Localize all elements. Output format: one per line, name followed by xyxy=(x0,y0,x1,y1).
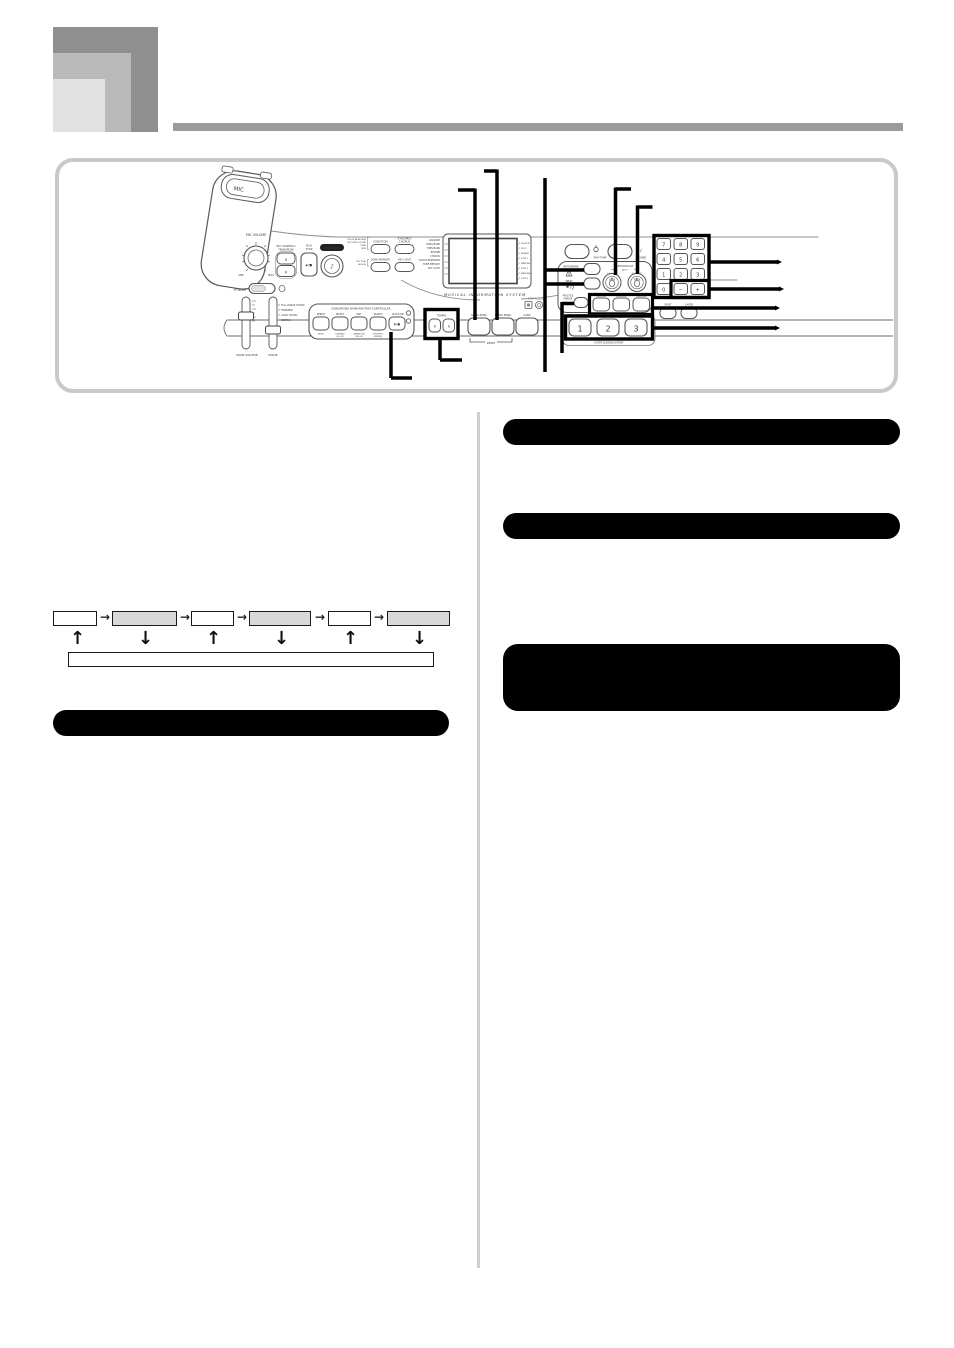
controller-playstop-glyph: ▶/■ xyxy=(394,322,400,326)
lesson-play-label: LESSON PLAY xyxy=(617,264,634,268)
flow-arrow-up-1: ↑ xyxy=(70,628,85,650)
svg-text:FULL RANGE CHORD: FULL RANGE CHORD xyxy=(281,304,305,307)
tempo-up-glyph: ∧ xyxy=(447,324,450,329)
auto-label: AUTO xyxy=(622,268,628,271)
flow-box-4 xyxy=(249,611,311,626)
svg-text:3: 3 xyxy=(696,273,699,279)
svg-text:TUNE: TUNE xyxy=(360,245,366,247)
transpose-up-glyph: ∧ xyxy=(284,258,287,263)
svg-text:SPLIT: SPLIT xyxy=(521,248,527,250)
flow-arrow-right-2: → xyxy=(180,610,190,624)
step-2-digit: 2 xyxy=(605,325,610,334)
svg-text:MIC PLAY: MIC PLAY xyxy=(356,260,366,263)
song-memory-label: SONG MEMORY xyxy=(371,258,391,262)
column-divider xyxy=(477,412,480,1268)
svg-text:SEARCH: SEARCH xyxy=(374,313,383,316)
svg-text:ACCOMP VOLUME: ACCOMP VOLUME xyxy=(348,241,367,244)
svg-text:4: 4 xyxy=(662,258,665,264)
transpose-down-glyph: ∨ xyxy=(284,271,287,276)
tone-icon: ♪ xyxy=(640,248,643,254)
bank-rhythm-controller: SONG/PIANO BANK/RHYTHM CONTROLLER REPEAT… xyxy=(309,304,414,339)
mode-label: MODE xyxy=(268,353,277,357)
key-light-button xyxy=(395,263,414,272)
svg-text:SELECT: SELECT xyxy=(336,313,345,316)
svg-text:7: 7 xyxy=(662,243,665,249)
flow-box-5 xyxy=(328,611,371,626)
right-section-header-2 xyxy=(503,513,900,539)
right-section-header-1 xyxy=(503,419,900,445)
flow-arrow-down-2: ↓ xyxy=(274,628,289,650)
transpose-label: TRANSPOSE xyxy=(278,248,294,252)
key-light-label: KEY LIGHT xyxy=(398,258,411,262)
rhythm-label: RHYTHM xyxy=(594,256,607,260)
svg-text:FILL-IN: FILL-IN xyxy=(337,336,344,338)
svg-text:TWIN BANK: TWIN BANK xyxy=(427,247,441,250)
manual-page: MIC MIC VOLUME MIN MAX KEY CONTROL/ TRAN… xyxy=(0,0,954,1348)
svg-text:1: 1 xyxy=(662,273,665,279)
numeric-keypad: 7 8 9 4 5 6 1 2 3 0 − + xyxy=(657,239,709,298)
playstop-label-1: PLAY xyxy=(306,244,313,248)
svg-text:EDIT: EDIT xyxy=(356,313,362,316)
step-1-digit: 1 xyxy=(577,325,582,334)
svg-text:SONG BANK: SONG BANK xyxy=(426,243,440,246)
svg-text:REPEAT: REPEAT xyxy=(521,252,530,255)
tempo-label: TEMPO xyxy=(436,314,448,318)
svg-text:MIDI: MIDI xyxy=(361,248,366,250)
svg-text:CHORUS: CHORUS xyxy=(430,255,440,258)
flow-arrow-right-4: → xyxy=(315,610,325,624)
left-section-header xyxy=(53,710,449,736)
svg-text:CASIO CHORD: CASIO CHORD xyxy=(281,314,298,317)
svg-text:NORMAL: NORMAL xyxy=(281,319,292,322)
svg-text:LESSON: LESSON xyxy=(521,243,530,245)
tempo-down-glyph: ∨ xyxy=(433,324,436,329)
right-note-box xyxy=(503,644,900,711)
svg-text:VARIATION/: VARIATION/ xyxy=(353,333,365,336)
svg-text:PLAY/STOP: PLAY/STOP xyxy=(392,313,404,316)
key-control-label: KEY CONTROL/ xyxy=(276,244,295,248)
svg-text:REVERB: REVERB xyxy=(431,251,441,254)
flow-arrow-right-5: → xyxy=(374,610,384,624)
max-label: MAX xyxy=(268,273,274,277)
svg-text:0: 0 xyxy=(662,288,665,294)
playstop-label-2: STOP xyxy=(306,247,313,251)
svg-text:6: 6 xyxy=(696,258,699,264)
svg-text:STEP 2: STEP 2 xyxy=(521,268,529,270)
svg-text:LESSON: LESSON xyxy=(358,264,367,266)
step-caption: 3-STEP LESSON SYSTEM xyxy=(594,342,623,345)
flow-box-1 xyxy=(53,611,97,626)
practice-phrase-button xyxy=(574,298,588,308)
flow-arrow-down-3: ↓ xyxy=(412,628,427,650)
card-button xyxy=(516,318,538,335)
piano-bank-button xyxy=(492,318,514,335)
flow-arrow-right-1: → xyxy=(100,610,110,624)
controller-led-1-icon xyxy=(406,311,410,315)
svg-text:NORMAL/: NORMAL/ xyxy=(335,333,345,336)
song-bank-button xyxy=(468,318,490,335)
lesson-button-2 xyxy=(613,298,630,311)
controller-button-4 xyxy=(370,317,386,330)
lesson-button-1 xyxy=(593,298,610,311)
lesson-right-knob xyxy=(628,274,646,292)
svg-text:2: 2 xyxy=(679,273,682,279)
svg-text:WAITING 2: WAITING 2 xyxy=(521,272,533,275)
controller-led-2-icon xyxy=(406,319,410,323)
synchro-label-2: CHORUS xyxy=(399,240,411,244)
svg-text:WAITING 1: WAITING 1 xyxy=(521,262,533,265)
metronome-button xyxy=(584,264,600,275)
svg-text:FILL-IN: FILL-IN xyxy=(356,336,363,338)
synchro-button xyxy=(395,245,414,254)
lesson-left-knob xyxy=(603,274,621,292)
lesson-button-3 xyxy=(633,298,650,311)
svg-text:TOUCH RESPONSE: TOUCH RESPONSE xyxy=(347,239,367,241)
chapter-title-rule xyxy=(173,123,903,131)
svg-text:KARAOKE: KARAOKE xyxy=(429,239,440,242)
svg-text:FINGERED: FINGERED xyxy=(281,309,293,312)
function-label: FUNCTION xyxy=(374,240,388,244)
svg-text:STEP 1: STEP 1 xyxy=(521,258,529,260)
display-screen xyxy=(449,239,517,284)
step-3-digit: 3 xyxy=(633,325,638,334)
svg-text:REPEAT: REPEAT xyxy=(317,313,326,316)
svg-text:STEP 3: STEP 3 xyxy=(521,278,529,280)
svg-text:TONE MEMORY: TONE MEMORY xyxy=(423,263,441,266)
svg-text:9: 9 xyxy=(696,243,699,249)
speak-button xyxy=(584,278,600,289)
svg-text:INTRO: INTRO xyxy=(318,334,325,336)
mic-volume-label: MIC VOLUME xyxy=(246,233,266,237)
corner-square-light xyxy=(53,79,105,132)
power-label: POWER xyxy=(234,288,247,292)
svg-text:8: 8 xyxy=(679,243,682,249)
svg-text:KEY LIGHT: KEY LIGHT xyxy=(428,267,441,270)
svg-text:−: − xyxy=(679,288,683,294)
svg-text:5: 5 xyxy=(679,258,682,264)
layer-label: LAYER xyxy=(685,303,693,307)
card-slot-dot-icon xyxy=(527,304,530,307)
svg-text:SYNCHRO/: SYNCHRO/ xyxy=(373,334,384,336)
svg-text:+: + xyxy=(696,288,700,294)
flow-box-2 xyxy=(112,611,177,626)
svg-text:TOUCH RESPONSE: TOUCH RESPONSE xyxy=(419,259,441,262)
screw-icon xyxy=(536,302,543,309)
split-label: SPLIT xyxy=(664,303,671,307)
flow-long-box xyxy=(68,652,434,667)
svg-text:ENDING: ENDING xyxy=(374,336,382,338)
min-label: MIN xyxy=(239,273,244,277)
karaoke-note-icon: ♪ xyxy=(330,264,334,271)
controller-button-3 xyxy=(351,317,367,330)
keyboard-panel-diagram: MIC MIC VOLUME MIN MAX KEY CONTROL/ TRAN… xyxy=(55,158,898,393)
rhythm-button xyxy=(565,245,589,259)
flow-arrow-down-1: ↓ xyxy=(138,628,153,650)
display-caption: MUSICAL INFORMATION SYSTEM xyxy=(444,292,526,297)
svg-text:CARD: CARD xyxy=(523,313,530,317)
controller-button-1 xyxy=(313,317,329,330)
demo-label: DEMO xyxy=(487,341,496,345)
flow-arrow-up-3: ↑ xyxy=(343,628,358,650)
flow-arrow-right-3: → xyxy=(237,610,247,624)
flow-box-3 xyxy=(191,611,234,626)
controller-button-2 xyxy=(332,317,348,330)
metronome-label: METRONOME xyxy=(563,266,579,269)
tone-button xyxy=(608,245,632,259)
flow-arrow-up-2: ↑ xyxy=(206,628,221,650)
main-volume-label: MAIN VOLUME xyxy=(236,353,257,357)
karaoke-label: KARAOKE xyxy=(325,246,338,250)
controller-header: SONG/PIANO BANK/RHYTHM CONTROLLER xyxy=(331,307,390,311)
function-button xyxy=(371,245,390,254)
song-memory-button xyxy=(371,263,390,272)
practice-label-2: PHRASE xyxy=(564,297,573,300)
flow-box-6 xyxy=(387,611,450,626)
playstop-glyph: ▶/■ xyxy=(306,263,312,267)
